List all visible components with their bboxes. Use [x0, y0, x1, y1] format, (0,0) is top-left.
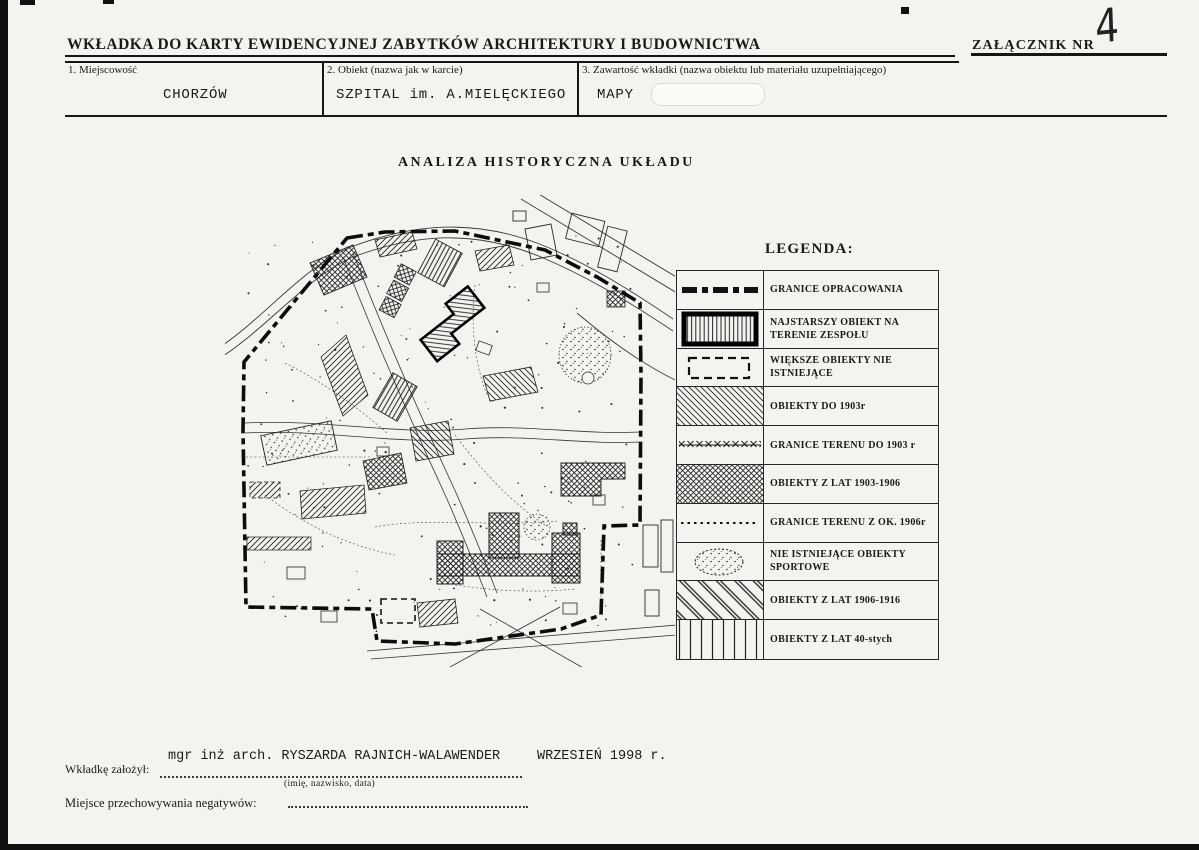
legend-symbol-obiekty-sportowe: [677, 543, 764, 582]
legend-table: GRANICE OPRACOWANIA NAJSTARSZY OBIEKT NA…: [676, 270, 939, 660]
signature-hint: (imię, nazwisko, data): [284, 779, 375, 789]
prepared-by-label: Wkładkę założył:: [65, 762, 149, 777]
rule-attachment-underline: [971, 53, 1167, 56]
legend-symbol-granice-do-1903: [677, 426, 764, 465]
scanned-record-card: WKŁADKA DO KARTY EWIDENCYJNEJ ZABYTKÓW A…: [0, 0, 1199, 850]
scan-mark-right: [901, 7, 909, 14]
handwritten-attachment-number: 4: [1094, 0, 1120, 55]
negatives-dotted-line: [288, 790, 528, 808]
legend-label: OBIEKTY Z LAT 1903-1906: [764, 465, 938, 504]
signature-dotted-line: [160, 756, 522, 778]
legend-symbol-wieksze-obiekty: [677, 349, 764, 388]
field-label-miejscowosc: 1. Miejscowość: [68, 64, 137, 76]
legend-symbol-obiekty-40-stych: [677, 620, 764, 659]
legend-label: OBIEKTY Z LAT 40-stych: [764, 620, 938, 659]
legend-label: OBIEKTY DO 1903r: [764, 387, 938, 426]
legend-label: OBIEKTY Z LAT 1906-1916: [764, 581, 938, 620]
legend-symbol-obiekty-1906-1916: [677, 581, 764, 620]
legend-label: WIĘKSZE OBIEKTY NIE ISTNIEJĄCE: [764, 349, 938, 388]
rule-table-divider-2: [577, 61, 579, 117]
map-title: ANALIZA HISTORYCZNA UKŁADU: [398, 155, 695, 171]
legend-symbol-granice-opracowania: [677, 271, 764, 310]
historical-analysis-map: [225, 195, 675, 667]
legend-label: GRANICE OPRACOWANIA: [764, 271, 938, 310]
field-value-zawartosc: MAPY: [597, 87, 634, 103]
rule-table-top: [65, 61, 959, 63]
legend-symbol-obiekty-do-1903: [677, 387, 764, 426]
legend-label: GRANICE TERENU DO 1903 r: [764, 426, 938, 465]
legend-label: NIE ISTNIEJĄCE OBIEKTY SPORTOWE: [764, 543, 938, 582]
legend-symbol-obiekty-1903-1906: [677, 465, 764, 504]
legend-label: GRANICE TERENU Z OK. 1906r: [764, 504, 938, 543]
rule-title-underline: [65, 55, 955, 57]
field-value-obiekt: SZPITAL im. A.MIELĘCKIEGO: [336, 87, 566, 103]
field-value-miejscowosc: CHORZÓW: [163, 87, 227, 103]
field-label-obiekt: 2. Obiekt (nazwa jak w karcie): [327, 64, 463, 76]
map-trees: [524, 327, 611, 540]
legend-label: NAJSTARSZY OBIEKT NA TERENIE ZESPOŁU: [764, 310, 938, 349]
map-oldest-building: [413, 287, 493, 362]
map-hospital-complex: [437, 513, 580, 584]
rule-table-divider-1: [322, 61, 324, 117]
prepared-date: WRZESIEŃ 1998 r.: [537, 749, 667, 764]
scan-edge-bottom: [0, 844, 1199, 850]
field-label-zawartosc: 3. Zawartość wkładki (nazwa obiektu lub …: [582, 64, 886, 76]
negatives-label: Miejsce przechowywania negatywów:: [65, 796, 257, 811]
scan-mark-top-1: [20, 0, 35, 5]
correction-fluid-patch: [651, 83, 765, 106]
map-bottom-roads: [367, 607, 675, 667]
attachment-label: ZAŁĄCZNIK NR: [972, 38, 1095, 54]
page-title: WKŁADKA DO KARTY EWIDENCYJNEJ ZABYTKÓW A…: [67, 36, 761, 54]
legend-symbol-granice-1906: [677, 504, 764, 543]
scan-edge-left: [0, 0, 8, 850]
legend-title: LEGENDA:: [765, 241, 854, 258]
scan-mark-top-2: [103, 0, 114, 4]
rule-table-bottom: [65, 115, 1167, 117]
legend-symbol-najstarszy-obiekt: [677, 310, 764, 349]
